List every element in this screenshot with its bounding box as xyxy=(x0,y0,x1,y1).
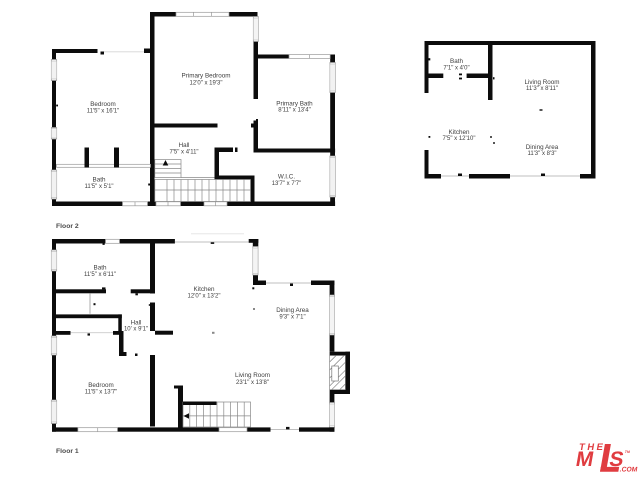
svg-text:11'5" x 13'7": 11'5" x 13'7" xyxy=(85,390,117,396)
svg-text:7'1" x 4'0": 7'1" x 4'0" xyxy=(443,66,469,72)
svg-text:23'1" x 13'8": 23'1" x 13'8" xyxy=(236,380,269,386)
svg-text:TM: TM xyxy=(624,450,630,454)
svg-text:10' x 9'1": 10' x 9'1" xyxy=(124,327,148,333)
svg-text:11'5" x 16'1": 11'5" x 16'1" xyxy=(87,109,119,115)
svg-text:Bath: Bath xyxy=(94,265,107,272)
svg-text:Living Room: Living Room xyxy=(235,372,270,379)
svg-text:11'5" x 6'11": 11'5" x 6'11" xyxy=(84,272,116,278)
svg-text:Bath: Bath xyxy=(93,177,106,184)
svg-text:W.I.C.: W.I.C. xyxy=(278,174,295,181)
svg-text:Primary Bath: Primary Bath xyxy=(276,100,313,107)
svg-text:8'11" x 13'4": 8'11" x 13'4" xyxy=(278,108,310,114)
svg-text:11'3" x 8'3": 11'3" x 8'3" xyxy=(527,151,556,157)
svg-text:Kitchen: Kitchen xyxy=(193,286,215,293)
svg-text:Dining Area: Dining Area xyxy=(276,307,309,314)
svg-text:Dining Area: Dining Area xyxy=(526,144,559,151)
svg-text:Primary Bedroom: Primary Bedroom xyxy=(182,73,231,80)
svg-text:Hall: Hall xyxy=(131,320,142,327)
svg-text:Living Room: Living Room xyxy=(525,79,560,86)
svg-text:Bedroom: Bedroom xyxy=(88,382,114,389)
svg-text:13'7" x 7'7": 13'7" x 7'7" xyxy=(272,181,302,187)
svg-text:7'5" x 4'11": 7'5" x 4'11" xyxy=(169,150,198,156)
svg-text:.COM: .COM xyxy=(619,467,638,474)
svg-text:Hall: Hall xyxy=(179,142,190,149)
svg-text:Floor 2: Floor 2 xyxy=(56,223,79,230)
svg-text:9'3" x 7'1": 9'3" x 7'1" xyxy=(279,315,305,321)
svg-text:12'0" x 19'3": 12'0" x 19'3" xyxy=(190,81,223,87)
svg-text:Bath: Bath xyxy=(450,58,463,65)
svg-text:Kitchen: Kitchen xyxy=(448,129,470,136)
svg-text:12'0" x 13'2": 12'0" x 13'2" xyxy=(188,294,221,300)
svg-text:Bedroom: Bedroom xyxy=(90,101,116,108)
svg-text:7'5" x 12'10": 7'5" x 12'10" xyxy=(443,136,476,142)
svg-text:11'3" x 8'11": 11'3" x 8'11" xyxy=(526,86,558,92)
svg-text:Floor 1: Floor 1 xyxy=(56,448,79,455)
svg-text:11'5" x 5'1": 11'5" x 5'1" xyxy=(84,184,113,190)
